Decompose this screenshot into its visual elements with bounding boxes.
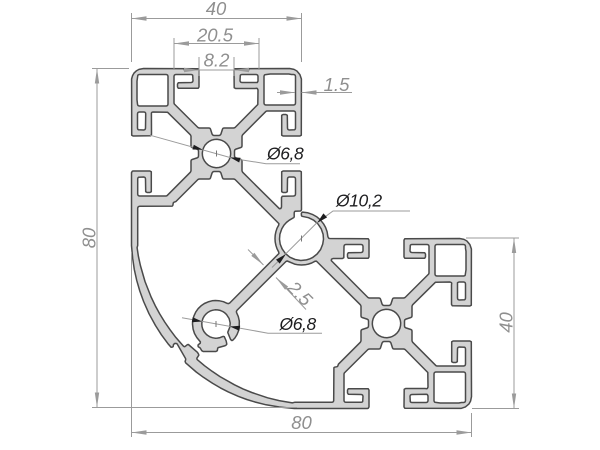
svg-text:20.5: 20.5 [196, 25, 234, 46]
svg-text:40: 40 [496, 312, 517, 333]
svg-text:8.2: 8.2 [204, 50, 230, 71]
svg-text:40: 40 [206, 0, 227, 19]
svg-text:80: 80 [79, 227, 100, 248]
svg-text:80: 80 [291, 412, 312, 433]
svg-text:Ø6,8: Ø6,8 [279, 314, 317, 334]
svg-text:Ø6,8: Ø6,8 [266, 144, 304, 164]
svg-text:1.5: 1.5 [324, 74, 350, 95]
svg-text:Ø10,2: Ø10,2 [335, 191, 382, 211]
